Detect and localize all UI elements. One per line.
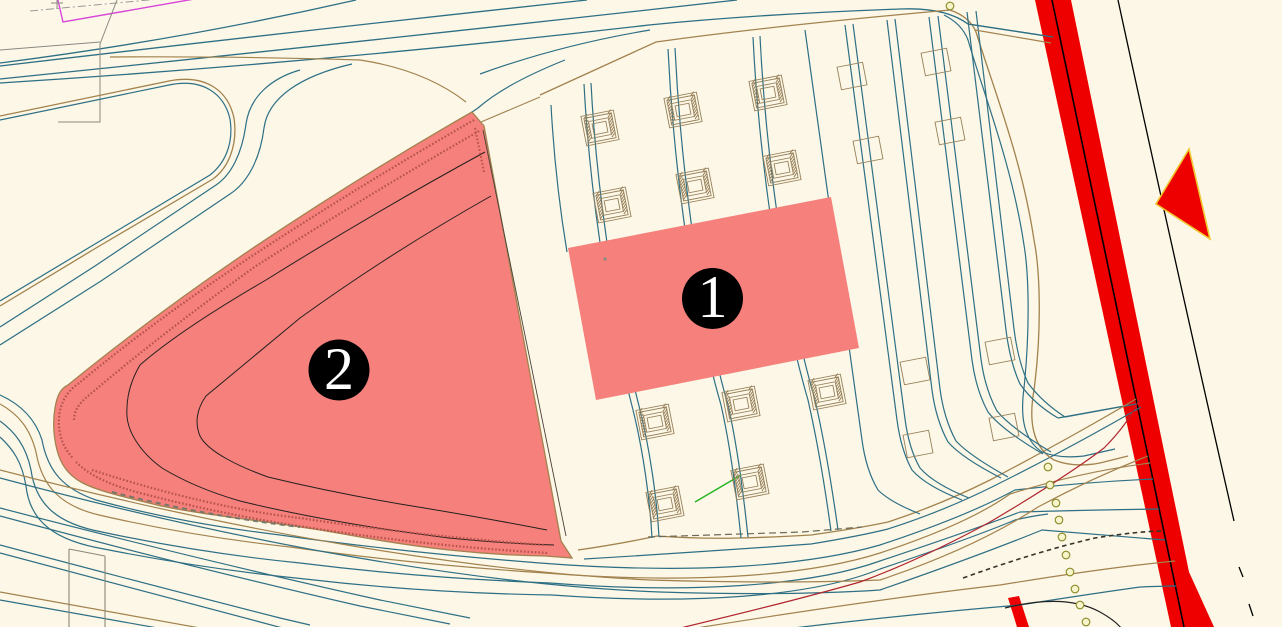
svg-text:2: 2 <box>324 336 354 402</box>
svg-text:1: 1 <box>698 264 728 330</box>
